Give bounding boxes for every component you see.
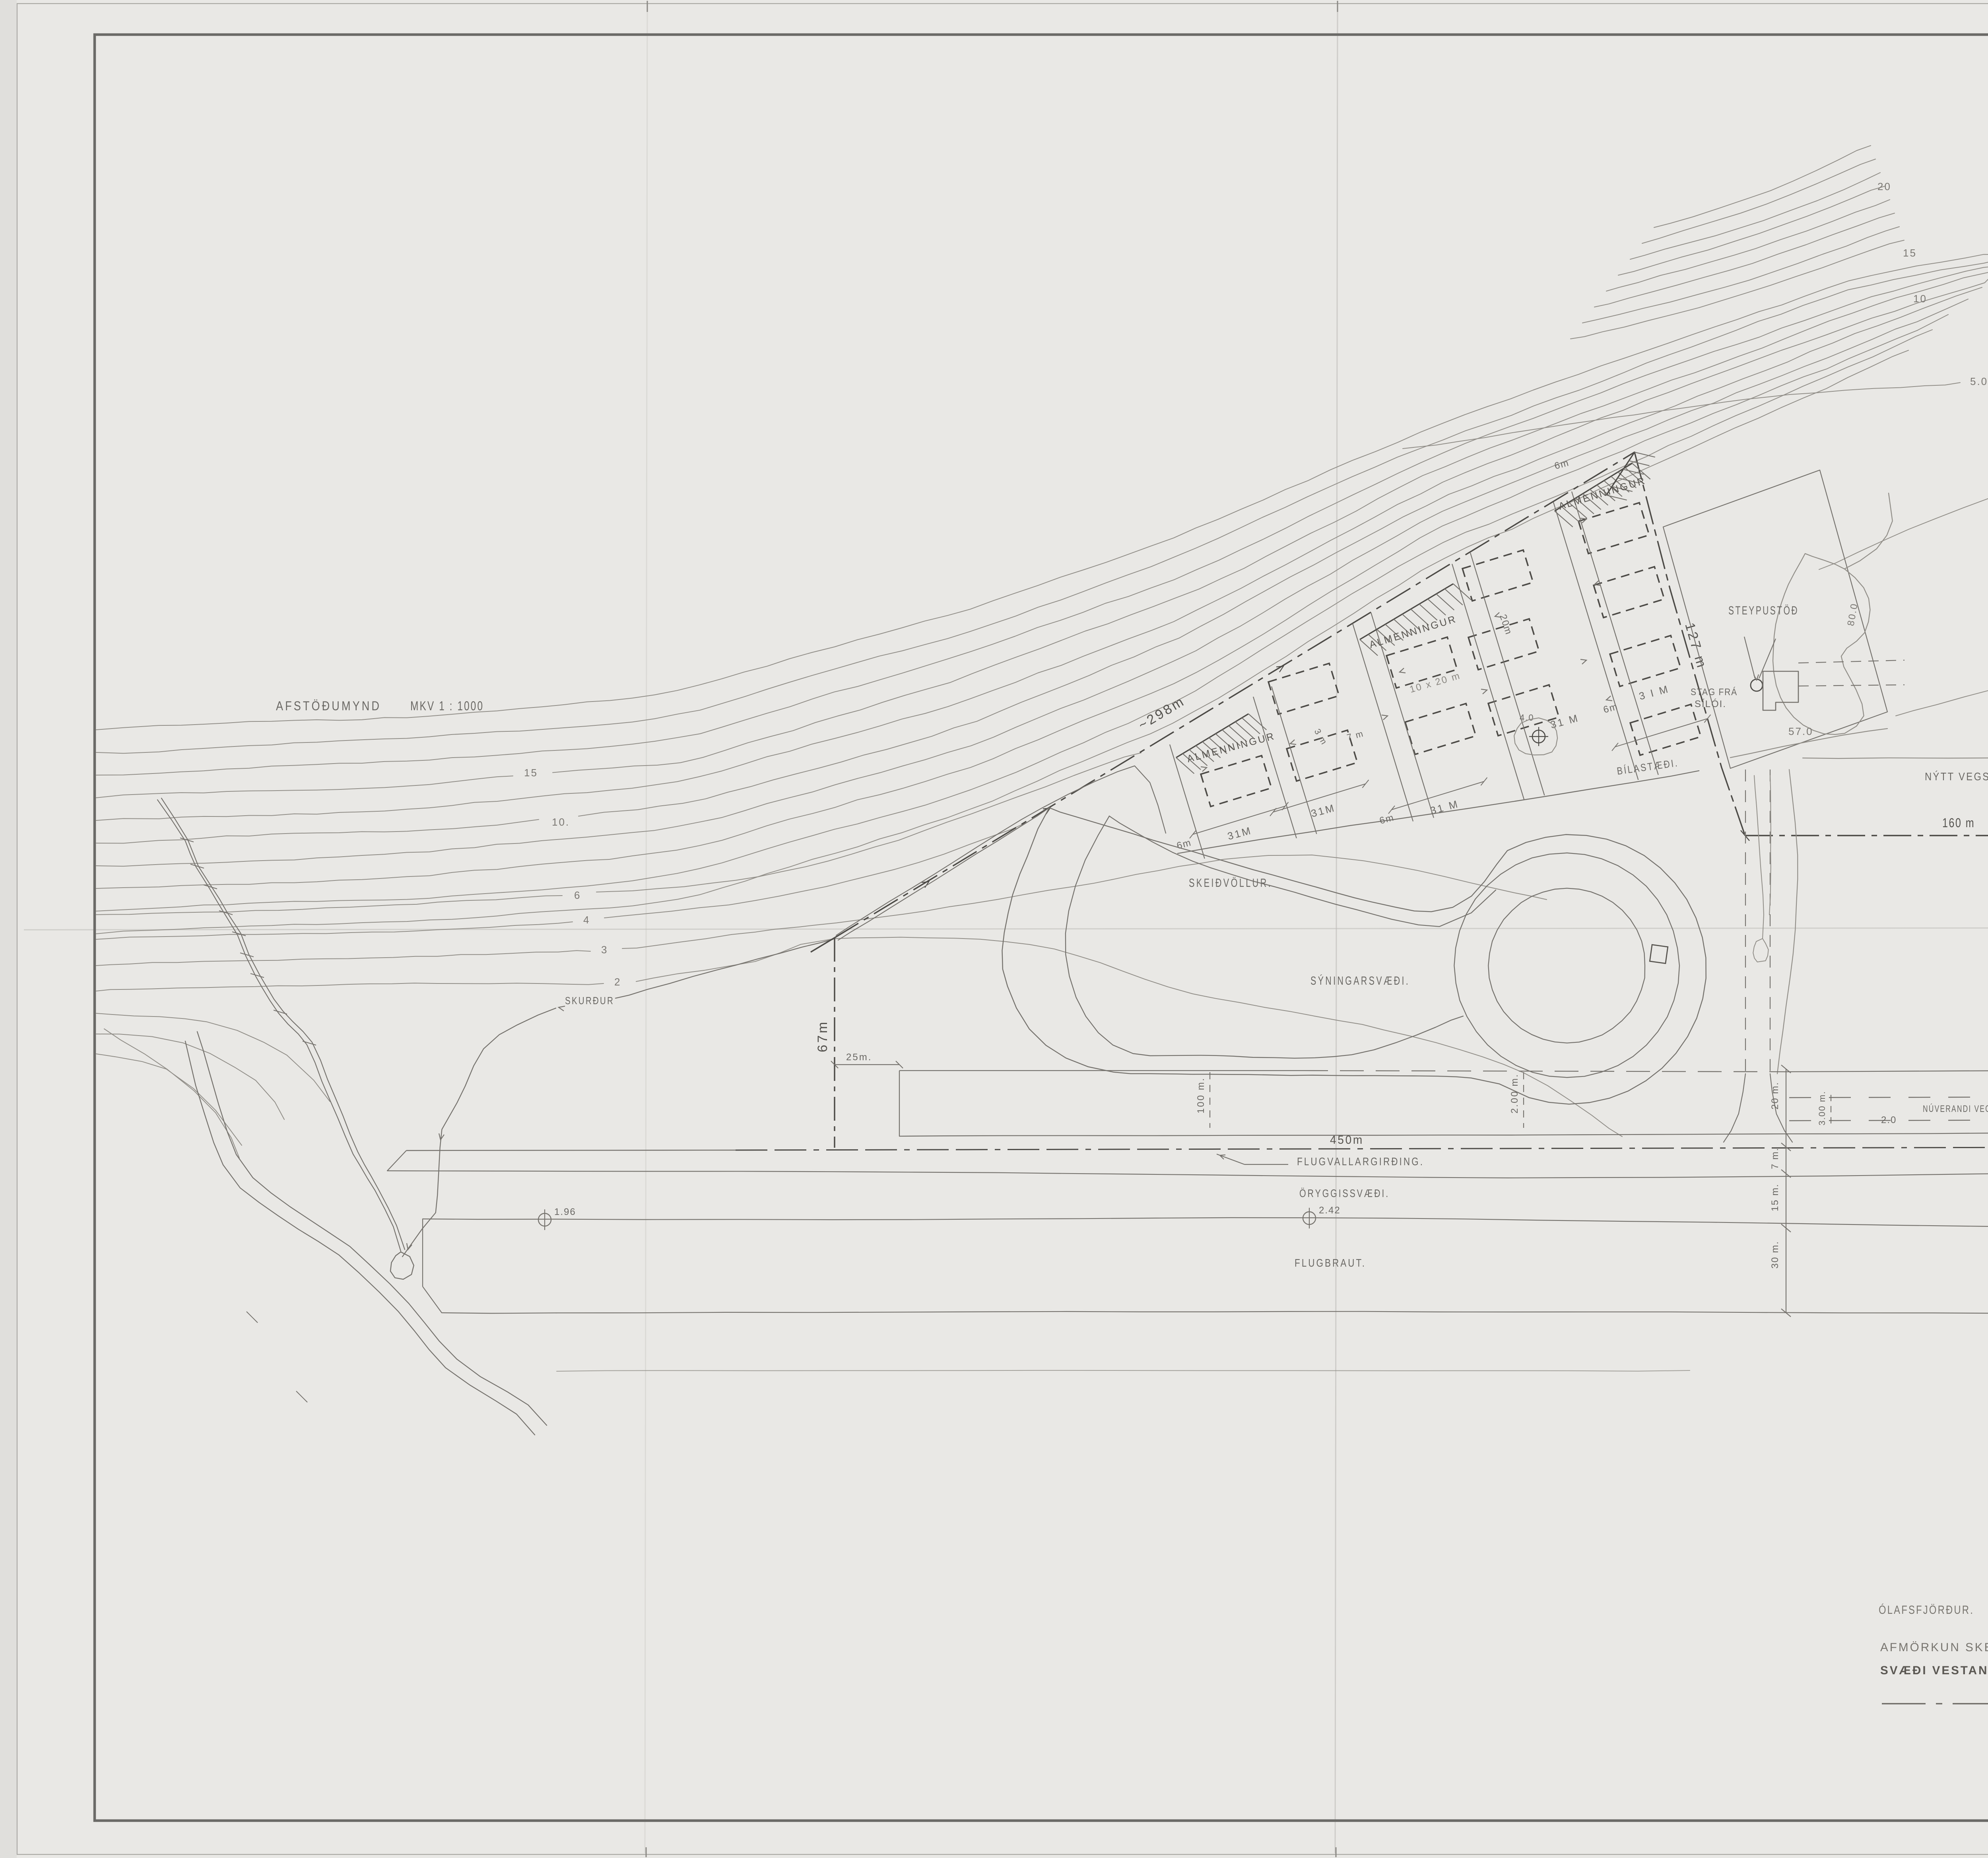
svg-text:67m: 67m xyxy=(815,1020,830,1052)
svg-text:FLUGVALLARGIRÐING.: FLUGVALLARGIRÐING. xyxy=(1297,1155,1424,1168)
svg-text:6: 6 xyxy=(574,889,581,901)
svg-text:25m.: 25m. xyxy=(846,1052,872,1063)
svg-text:SÍLÓI.: SÍLÓI. xyxy=(1695,699,1726,709)
svg-text:MKV 1 : 1000: MKV 1 : 1000 xyxy=(410,699,484,713)
svg-text:160 m: 160 m xyxy=(1942,816,1975,830)
svg-text:5.0: 5.0 xyxy=(1970,375,1988,387)
svg-text:NÝTT VEGSTÆÐI.: NÝTT VEGSTÆÐI. xyxy=(1925,770,1988,783)
svg-text:30 m.: 30 m. xyxy=(1770,1241,1780,1269)
svg-text:ÖRYGGISSVÆÐI.: ÖRYGGISSVÆÐI. xyxy=(1299,1187,1390,1199)
svg-text:15: 15 xyxy=(524,767,538,779)
svg-text:20: 20 xyxy=(1877,181,1891,192)
svg-text:100 m.: 100 m. xyxy=(1196,1077,1206,1114)
svg-text:2.42: 2.42 xyxy=(1319,1205,1341,1216)
svg-text:ÓLAFSFJÖRÐUR.: ÓLAFSFJÖRÐUR. xyxy=(1879,1603,1974,1617)
svg-text:15 m.: 15 m. xyxy=(1770,1184,1780,1211)
svg-text:4: 4 xyxy=(583,914,590,926)
svg-text:57.0: 57.0 xyxy=(1788,725,1813,737)
svg-text:AFSTÖÐUMYND: AFSTÖÐUMYND xyxy=(276,699,381,713)
svg-text:SKURÐUR: SKURÐUR xyxy=(565,995,614,1007)
svg-text:SKEIÐVÖLLUR.: SKEIÐVÖLLUR. xyxy=(1189,877,1272,890)
svg-text:10: 10 xyxy=(1913,293,1927,305)
svg-text:2.00 m.: 2.00 m. xyxy=(1509,1073,1520,1114)
svg-text:4.0: 4.0 xyxy=(1520,713,1534,723)
svg-text:NÚVERANDI VEGSTÆÐI.: NÚVERANDI VEGSTÆÐI. xyxy=(1923,1104,1988,1114)
svg-text:3.00 m.: 3.00 m. xyxy=(1817,1091,1827,1125)
svg-text:2.0: 2.0 xyxy=(1881,1115,1897,1125)
svg-text:SVÆÐI VESTAN FLUGBRAUTAR.: SVÆÐI VESTAN FLUGBRAUTAR. xyxy=(1880,1664,1988,1677)
svg-text:20 m.: 20 m. xyxy=(1770,1082,1780,1110)
svg-text:1.96: 1.96 xyxy=(554,1207,576,1217)
svg-text:AFMÖRKUN SKEIÐVALLAR OG STA: AFMÖRKUN SKEIÐVALLAR OG STAÐSETNING xyxy=(1880,1641,1988,1654)
svg-text:STEYPUSTÖÐ: STEYPUSTÖÐ xyxy=(1728,604,1799,617)
svg-text:450m: 450m xyxy=(1330,1133,1364,1147)
svg-text:7 m.: 7 m. xyxy=(1770,1147,1780,1169)
svg-text:15: 15 xyxy=(1903,247,1917,259)
svg-text:2: 2 xyxy=(614,976,621,988)
svg-text:3: 3 xyxy=(601,944,608,956)
svg-text:FLUGBRAUT.: FLUGBRAUT. xyxy=(1295,1257,1366,1269)
svg-text:SÝNINGARSVÆÐI.: SÝNINGARSVÆÐI. xyxy=(1310,974,1410,987)
svg-text:10.: 10. xyxy=(552,816,570,828)
svg-text:STAG FRÁ: STAG FRÁ xyxy=(1691,687,1738,698)
